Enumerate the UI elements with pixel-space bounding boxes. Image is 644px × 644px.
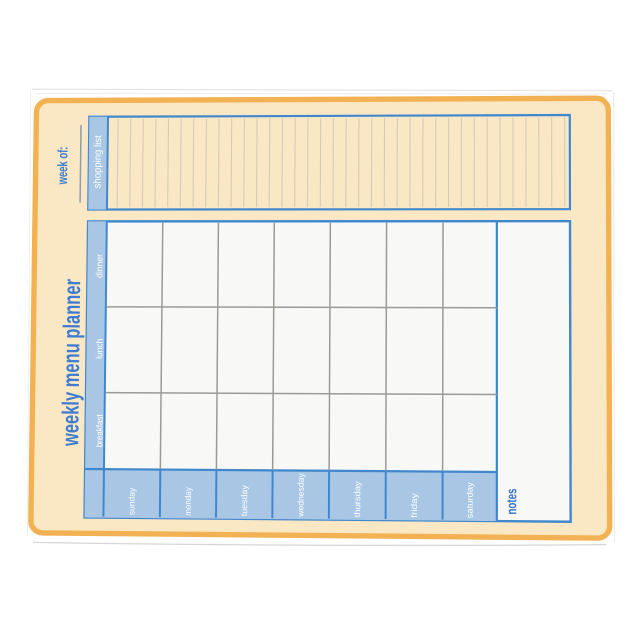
svg-text:wednesday: wednesday	[296, 473, 306, 518]
svg-text:weekly menu planner: weekly menu planner	[57, 279, 85, 447]
svg-text:monday: monday	[183, 487, 193, 516]
svg-text:breakfast: breakfast	[94, 414, 104, 447]
svg-text:notes: notes	[503, 488, 519, 514]
svg-text:shopping list: shopping list	[93, 135, 105, 188]
svg-text:lunch: lunch	[94, 339, 104, 359]
svg-text:friday: friday	[409, 492, 419, 517]
svg-text:tuesday: tuesday	[239, 484, 249, 516]
svg-text:sunday: sunday	[127, 487, 137, 515]
svg-text:week of:: week of:	[54, 146, 70, 185]
svg-text:thursday: thursday	[352, 480, 362, 517]
svg-text:dinner: dinner	[94, 254, 104, 278]
svg-text:saturday: saturday	[465, 481, 475, 518]
